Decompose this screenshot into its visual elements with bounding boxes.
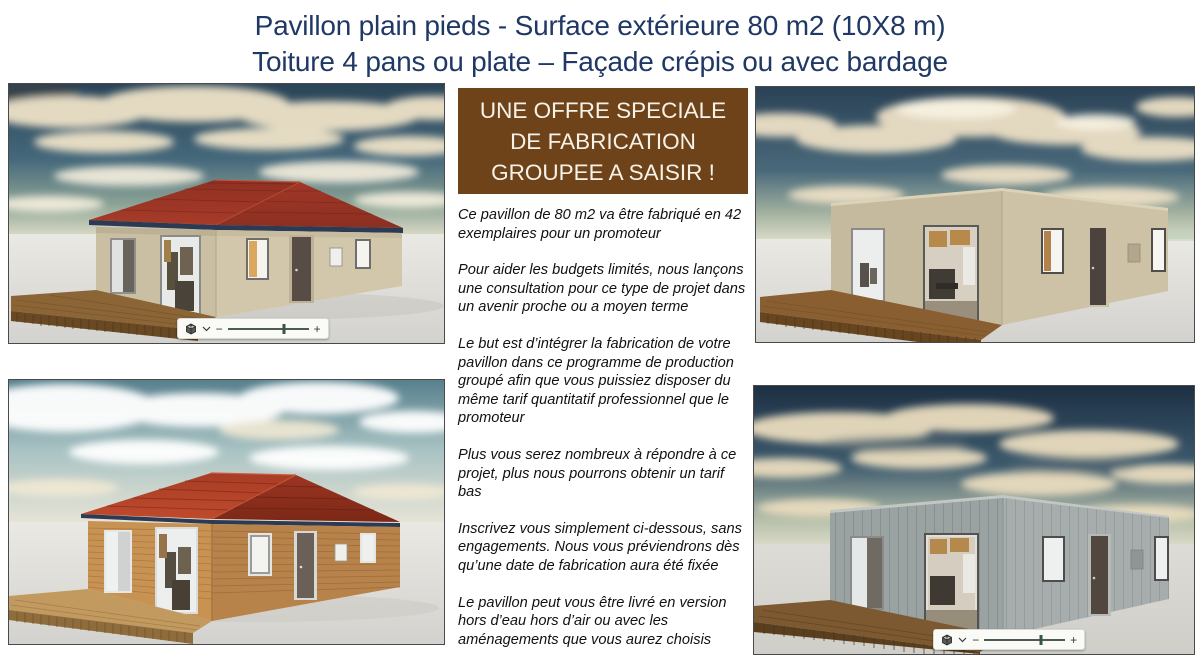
offer-paragraph: Le but est d’intégrer la fabrication de …	[458, 335, 748, 428]
render-panel-top-right	[755, 86, 1195, 343]
offer-column: UNE OFFRE SPECIALE DE FABRICATION GROUPE…	[458, 88, 748, 667]
zoom-out-button[interactable]: −	[972, 634, 979, 646]
house-scene-flat-gray	[754, 386, 1194, 654]
offer-paragraph: Pour aider les budgets limités, nous lan…	[458, 261, 748, 317]
entry-door	[289, 235, 314, 303]
view-cube-button[interactable]	[185, 323, 197, 335]
title-line-2: Toiture 4 pans ou plate – Façade crépis …	[0, 44, 1200, 80]
title-line-1: Pavillon plain pieds - Surface extérieur…	[0, 8, 1200, 44]
entry-door	[294, 531, 317, 600]
render-panel-top-left: − +	[8, 83, 445, 344]
entry-door	[1088, 534, 1111, 616]
zoom-slider[interactable]	[984, 639, 1065, 641]
page-title: Pavillon plain pieds - Surface extérieur…	[0, 8, 1200, 80]
zoom-in-button[interactable]: +	[1070, 634, 1077, 646]
view-cube-button[interactable]	[941, 634, 953, 646]
render-panel-bottom-right: − +	[753, 385, 1195, 655]
zoom-out-button[interactable]: −	[216, 323, 223, 335]
offer-banner: UNE OFFRE SPECIALE DE FABRICATION GROUPE…	[458, 88, 748, 194]
zoom-slider-handle[interactable]	[283, 324, 286, 334]
chevron-down-icon[interactable]	[202, 326, 211, 332]
house-scene-flat-crepis	[756, 87, 1194, 342]
zoom-slider[interactable]	[228, 328, 309, 330]
offer-paragraph: Plus vous serez nombreux à répondre à ce…	[458, 446, 748, 502]
render-panel-bottom-left	[8, 379, 445, 645]
viewer-toolbar[interactable]: − +	[933, 629, 1085, 650]
zoom-in-button[interactable]: +	[314, 323, 321, 335]
viewer-toolbar[interactable]: − +	[177, 318, 329, 339]
house-scene-hip-wood	[9, 380, 444, 644]
zoom-slider-handle[interactable]	[1039, 635, 1042, 645]
offer-text: Ce pavillon de 80 m2 va être fabriqué en…	[458, 206, 748, 649]
flyer-page: Pavillon plain pieds - Surface extérieur…	[0, 0, 1200, 662]
offer-paragraph: Inscrivez vous simplement ci-dessous, sa…	[458, 520, 748, 576]
entry-door	[1087, 226, 1109, 307]
banner-line-1: UNE OFFRE SPECIALE	[458, 95, 748, 126]
chevron-down-icon[interactable]	[958, 637, 967, 643]
cube-icon	[941, 634, 953, 646]
banner-line-3: GROUPEE A SAISIR !	[458, 157, 748, 188]
banner-line-2: DE FABRICATION	[458, 126, 748, 157]
offer-paragraph: Le pavillon peut vous être livré en vers…	[458, 594, 748, 650]
cube-icon	[185, 323, 197, 335]
offer-paragraph: Ce pavillon de 80 m2 va être fabriqué en…	[458, 206, 748, 243]
house-scene-hip-crepis	[9, 84, 444, 343]
